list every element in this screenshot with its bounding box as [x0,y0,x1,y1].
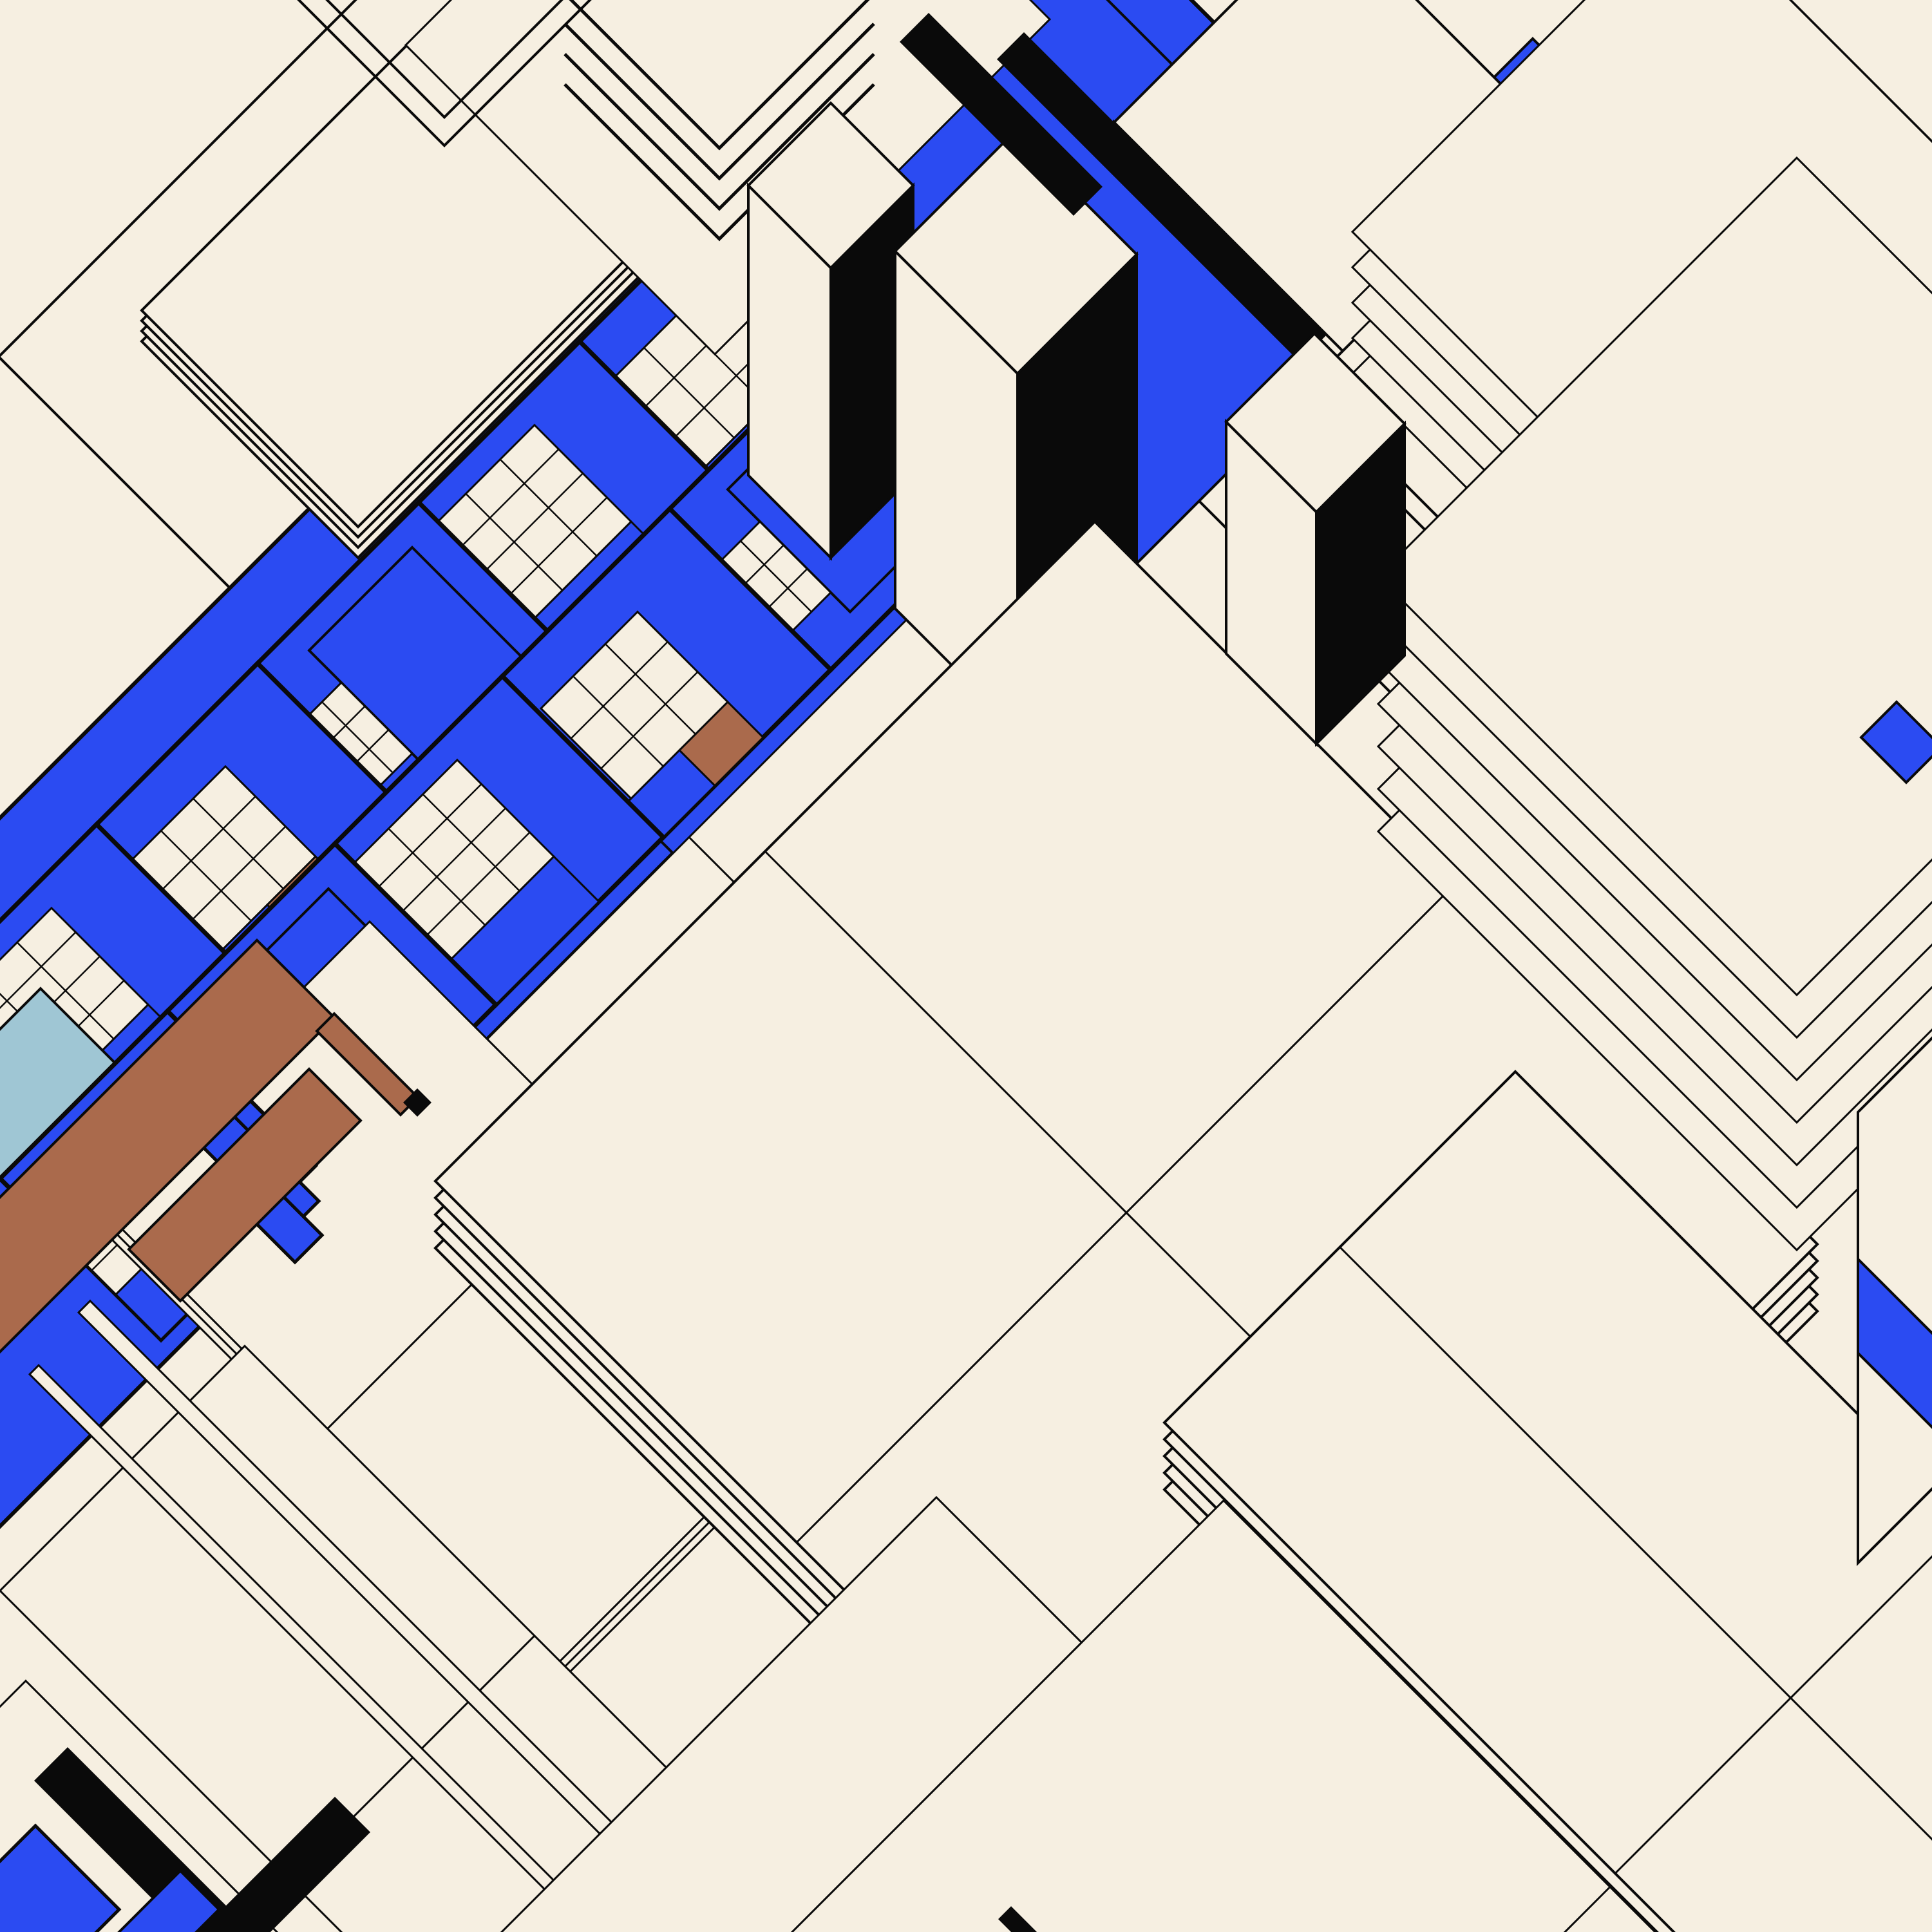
axonometric-artwork [0,0,1932,1932]
artwork-stage [0,0,1932,1932]
